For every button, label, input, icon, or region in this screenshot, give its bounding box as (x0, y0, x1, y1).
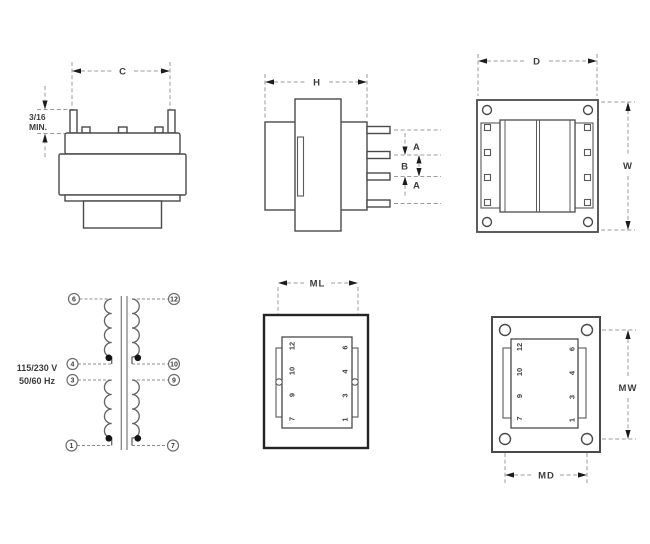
pin-number: 7 (171, 443, 175, 450)
top-view-dim-w: W (601, 102, 635, 230)
pin-square (485, 175, 491, 181)
dim-a-top-label: A (413, 142, 420, 153)
dim-c-label: C (119, 67, 127, 78)
rating-voltage: 115/230 V (17, 363, 58, 373)
schematic-pin-10: 10 (169, 359, 180, 370)
arrowhead-right (358, 79, 367, 84)
arrowhead-down (625, 430, 630, 439)
side-pin-3 (367, 173, 390, 180)
pin-label-3: 3 (340, 393, 349, 397)
pin-square (485, 150, 491, 156)
dim-md-label: MD (538, 471, 555, 482)
mounting-hole (584, 218, 593, 227)
arrowhead-left (265, 79, 274, 84)
arrowhead-down (416, 168, 421, 177)
min-lead-label-2: MIN. (29, 122, 47, 132)
pin-label-10: 10 (287, 367, 296, 375)
bottom-view-pins: ML 12 10 9 7 6 4 3 1 (264, 279, 368, 449)
pin-square (585, 125, 591, 131)
schematic-pin-3: 3 (67, 375, 78, 386)
polarity-dot (135, 355, 142, 362)
bottom-bobbin-outline (511, 339, 578, 428)
front-bottom-lip (65, 195, 180, 201)
pin-label-7: 7 (287, 417, 296, 421)
mounting-hole (582, 434, 593, 445)
pin-label-12: 12 (287, 342, 296, 350)
arrowhead-left (72, 68, 81, 73)
top-view-bobbin (500, 120, 575, 212)
top-view-right-pin-strip (575, 123, 593, 208)
front-top-flange (65, 133, 180, 154)
arrowhead-down (42, 101, 47, 110)
front-view-dim-c: C (72, 62, 170, 131)
schematic-pin-1: 1 (66, 440, 77, 451)
pin-number: 1 (70, 443, 74, 450)
schematic: 115/230 V 50/60 Hz 6 4 (17, 294, 180, 452)
polarity-dot (135, 435, 142, 442)
top-view: D W (477, 54, 635, 232)
arrowhead-up (416, 155, 421, 164)
arrowhead-right (578, 472, 587, 477)
pin-number: 3 (71, 378, 75, 385)
polarity-dot (106, 435, 113, 442)
top-view-dim-d: D (478, 54, 597, 96)
pin-number: 4 (71, 362, 75, 369)
side-pin-1 (367, 127, 390, 134)
secondary-winding-top (132, 299, 139, 364)
pin-square (585, 200, 591, 206)
pin-label-9: 9 (515, 394, 524, 398)
schematic-pin-9: 9 (169, 375, 180, 386)
dim-b-label: B (401, 162, 409, 173)
bottom-view-dim-mw: MW (602, 330, 637, 439)
min-lead-label-1: 3/16 (29, 112, 46, 122)
tab-hole (276, 379, 282, 385)
schematic-pin-12: 12 (169, 294, 180, 305)
arrowhead-right (161, 68, 170, 73)
rating-frequency: 50/60 Hz (19, 376, 56, 386)
side-view-dim-pin-pitch: A B A (394, 130, 441, 204)
dim-h-label: H (313, 78, 321, 89)
schematic-pin-4: 4 (67, 359, 78, 370)
mounting-hole (500, 434, 511, 445)
pin-label-6: 6 (567, 347, 576, 351)
pin-number: 6 (72, 297, 76, 304)
dim-d-label: D (533, 57, 541, 68)
arrowhead-right (588, 58, 597, 63)
arrowhead-up (625, 330, 630, 339)
arrowhead-left (505, 472, 514, 477)
pin-label-9: 9 (287, 393, 296, 397)
pin-label-1: 1 (567, 418, 576, 422)
transformer-drawing-sheet: C 3/16 MIN. H (0, 0, 650, 544)
pin-number: 12 (170, 297, 178, 304)
arrowhead-right (349, 280, 358, 285)
pin-number: 9 (172, 378, 176, 385)
front-pin-stub (155, 127, 163, 133)
mounting-hole (582, 325, 593, 336)
mounting-hole (584, 106, 593, 115)
pin-label-1: 1 (340, 417, 349, 421)
primary-winding-top (104, 299, 111, 364)
dim-a-bottom-label: A (413, 181, 420, 192)
pin-label-3: 3 (567, 395, 576, 399)
mounting-hole (483, 106, 492, 115)
pin-square (585, 150, 591, 156)
bottom-view-dim-md: MD (505, 453, 587, 483)
polarity-dot (106, 355, 113, 362)
arrowhead-left (278, 280, 287, 285)
drawing-canvas: C 3/16 MIN. H (0, 0, 650, 544)
arrowhead-up (42, 134, 47, 143)
pin-label-12: 12 (515, 343, 524, 351)
bottom-right-tab (578, 348, 586, 418)
front-right-pin (168, 110, 175, 133)
schematic-pin-6: 6 (69, 294, 80, 305)
side-pin-4 (367, 200, 390, 207)
front-core-band (59, 154, 186, 195)
pin-square (485, 125, 491, 131)
dim-w-label: W (623, 161, 633, 172)
mounting-hole (500, 325, 511, 336)
pin-label-6: 6 (340, 345, 349, 349)
front-pin-stub (82, 127, 90, 133)
top-view-left-pin-strip (481, 123, 500, 208)
front-base-block (84, 201, 162, 228)
pin-square (485, 200, 491, 206)
side-bobbin-edge-detail (298, 137, 304, 196)
side-view: H A B A (265, 74, 441, 231)
tab-hole (352, 379, 358, 385)
pin-number: 10 (170, 362, 178, 369)
pin-label-7: 7 (515, 416, 524, 420)
arrowhead-left (478, 58, 487, 63)
bottom-left-tab (503, 348, 511, 418)
pin-square (585, 175, 591, 181)
arrowhead-up (625, 102, 630, 111)
arrowhead-down (625, 221, 630, 230)
front-pin-stub (119, 127, 128, 133)
front-left-pin (70, 110, 77, 133)
dim-mw-label: MW (619, 383, 638, 394)
arrowhead-up (402, 177, 407, 186)
mounting-hole (483, 218, 492, 227)
bottom-view-mounting: 12 10 9 7 6 4 3 1 MW MD (492, 317, 637, 483)
arrowhead-down (402, 147, 407, 156)
pin-label-10: 10 (515, 368, 524, 376)
schematic-pin-7: 7 (168, 440, 179, 451)
side-pin-2 (367, 152, 390, 159)
dim-ml-label: ML (310, 279, 326, 290)
front-view: C 3/16 MIN. (29, 62, 186, 228)
